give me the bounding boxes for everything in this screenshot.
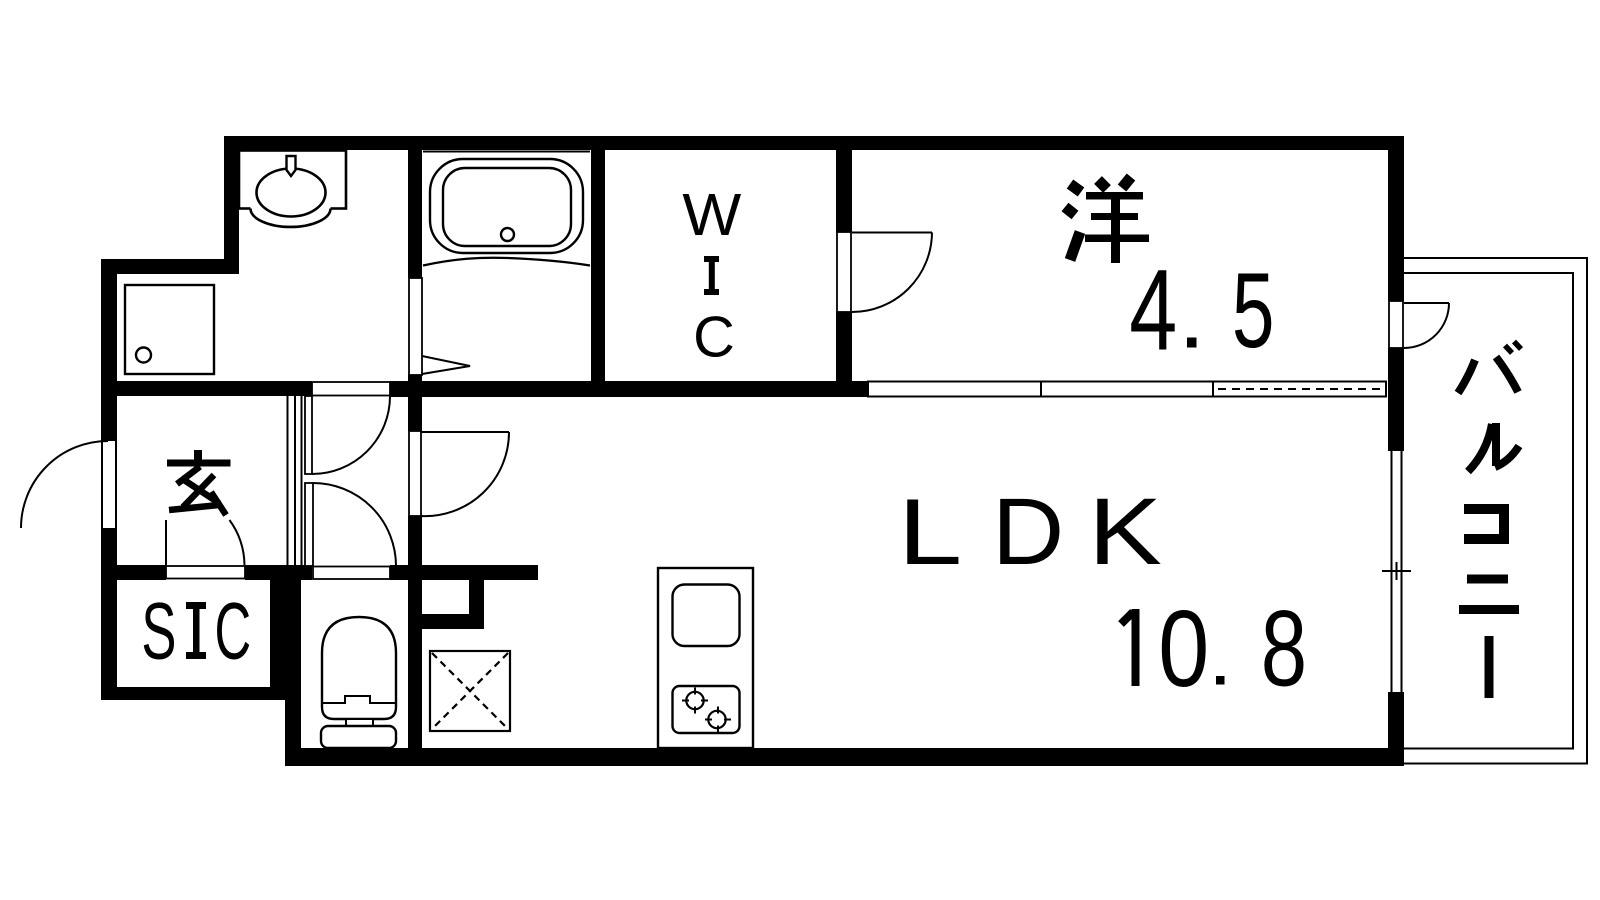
svg-text:8: 8 [1261, 589, 1307, 709]
svg-text:5: 5 [1232, 250, 1275, 370]
svg-text:W: W [682, 181, 741, 247]
svg-text:C: C [693, 306, 735, 370]
svg-text:D: D [992, 479, 1064, 585]
svg-text:C: C [215, 587, 252, 677]
svg-text:K: K [1088, 479, 1162, 585]
svg-text:S: S [141, 588, 176, 677]
svg-text:0: 0 [1158, 589, 1209, 710]
svg-text:4: 4 [1129, 245, 1177, 374]
svg-text:L: L [898, 479, 963, 584]
